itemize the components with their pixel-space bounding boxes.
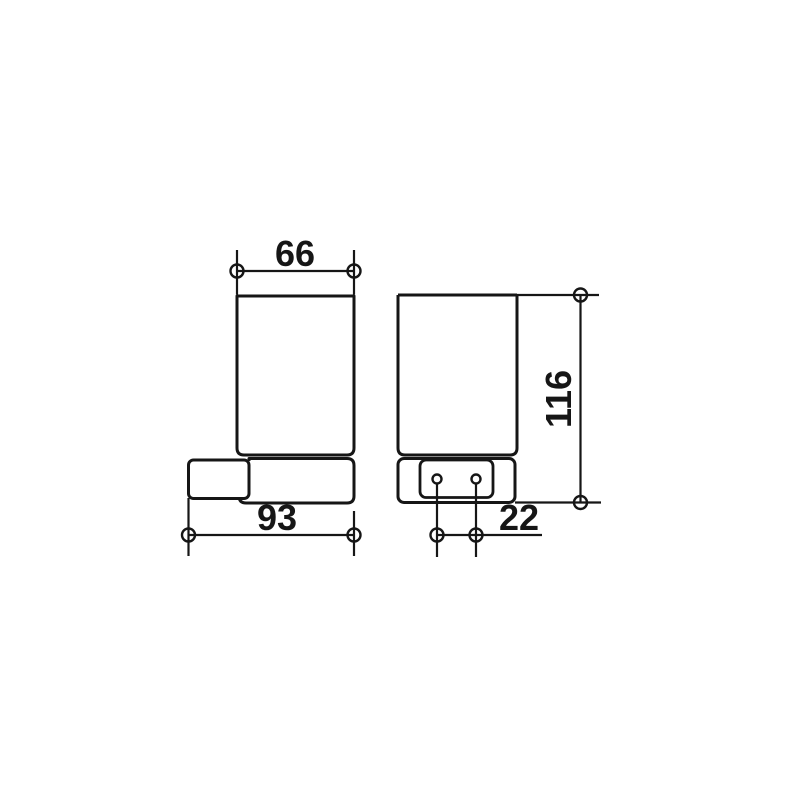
drawing-canvas: 66 93 (0, 0, 800, 800)
dim-116-label: 116 (538, 370, 579, 428)
screw-hole-left (433, 475, 442, 484)
dimension-cup-width: 66 (231, 233, 361, 295)
dim-22-label: 22 (499, 497, 539, 538)
dimension-wall-projection: 93 (182, 497, 361, 556)
front-view: 66 93 (182, 233, 361, 556)
screw-hole-right (472, 475, 481, 484)
side-view: 116 22 (398, 289, 601, 558)
cup-side-outline (398, 295, 517, 455)
dimension-drawing: 66 93 (0, 0, 800, 800)
dim-66-label: 66 (275, 233, 315, 274)
dim-93-label: 93 (257, 497, 297, 538)
dimension-overall-height: 116 (515, 289, 601, 510)
cup-front-outline (237, 296, 354, 455)
mounting-plate-outline (420, 460, 493, 498)
wall-bracket-outline (189, 460, 250, 499)
